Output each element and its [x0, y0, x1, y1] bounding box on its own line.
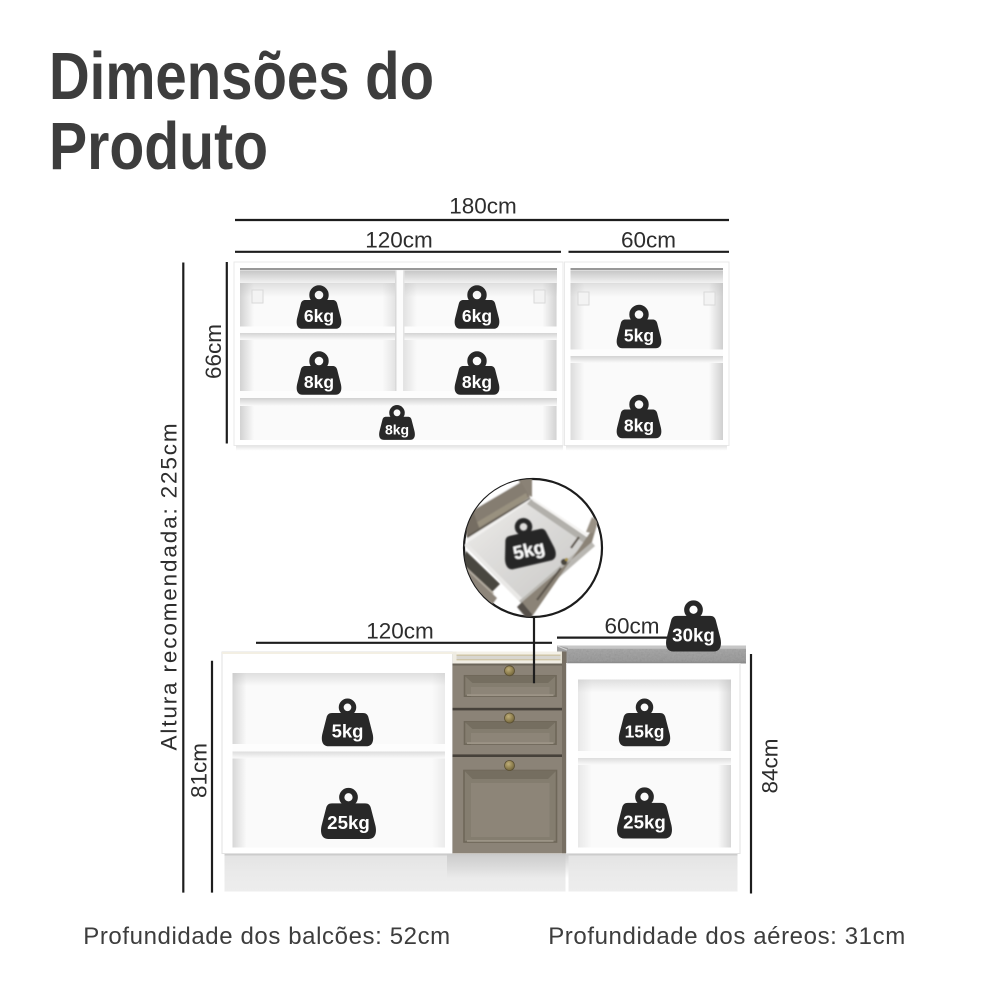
svg-text:66cm: 66cm [201, 324, 226, 379]
svg-text:30kg: 30kg [672, 625, 715, 646]
svg-text:60cm: 60cm [604, 613, 659, 638]
svg-text:180cm: 180cm [449, 194, 517, 219]
svg-text:15kg: 15kg [625, 722, 665, 742]
svg-text:Produto: Produto [49, 109, 268, 184]
svg-text:Profundidade dos balcões: 52cm: Profundidade dos balcões: 52cm [83, 923, 451, 950]
svg-text:5kg: 5kg [332, 721, 364, 742]
svg-text:60cm: 60cm [621, 228, 676, 253]
svg-text:Altura recomendada: 225cm: Altura recomendada: 225cm [157, 422, 182, 751]
svg-text:25kg: 25kg [327, 812, 370, 833]
svg-text:84cm: 84cm [758, 738, 783, 793]
svg-text:5kg: 5kg [624, 325, 654, 345]
svg-text:Dimensões do: Dimensões do [49, 39, 434, 114]
svg-text:Profundidade dos aéreos: 31cm: Profundidade dos aéreos: 31cm [548, 923, 906, 950]
svg-text:6kg: 6kg [462, 306, 492, 326]
svg-text:120cm: 120cm [366, 619, 434, 644]
svg-text:81cm: 81cm [187, 743, 212, 798]
svg-text:6kg: 6kg [304, 306, 334, 326]
svg-text:120cm: 120cm [365, 228, 433, 253]
svg-text:25kg: 25kg [623, 812, 666, 833]
svg-text:8kg: 8kg [462, 372, 492, 392]
svg-text:8kg: 8kg [624, 415, 654, 435]
svg-text:8kg: 8kg [385, 421, 409, 437]
svg-text:8kg: 8kg [304, 372, 334, 392]
